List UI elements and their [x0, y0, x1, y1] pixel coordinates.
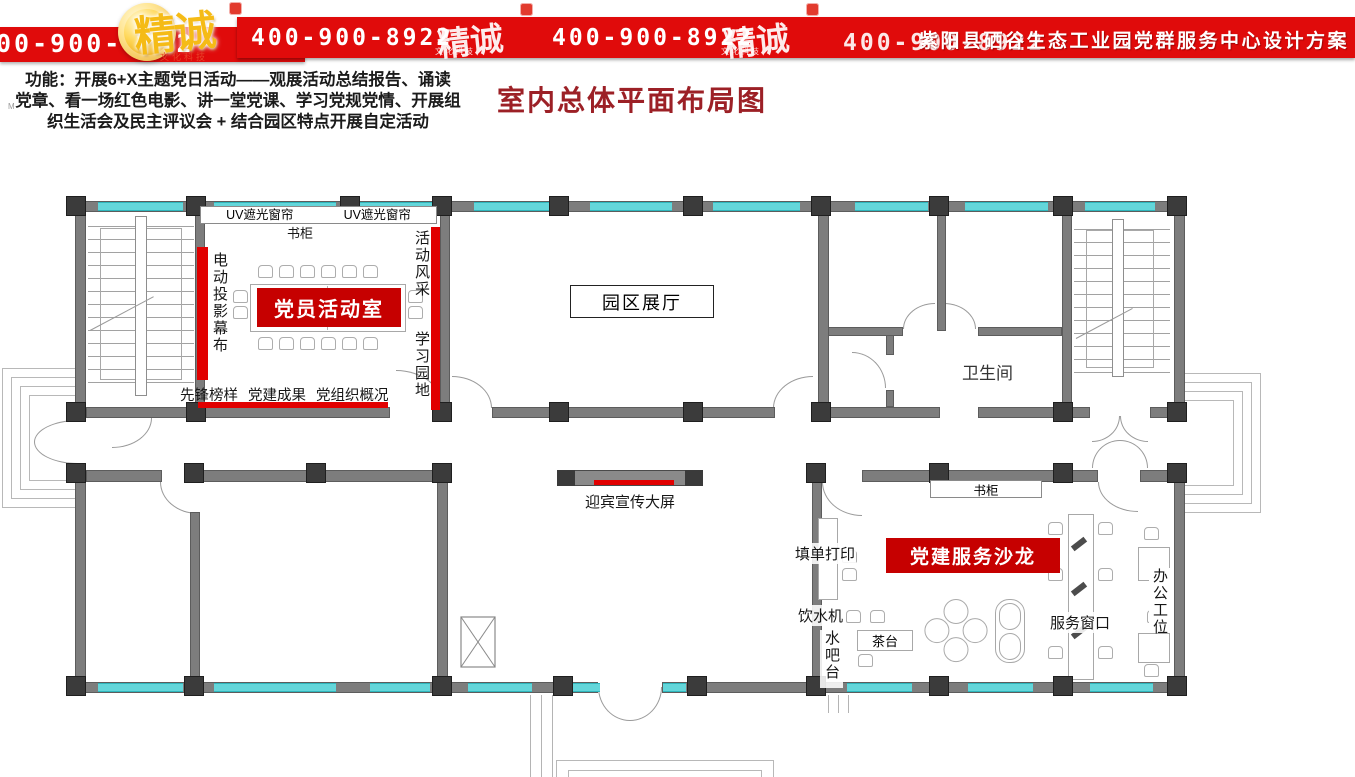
page-title: 室内总体平面布局图	[497, 79, 807, 119]
porch-line	[568, 770, 762, 777]
column	[184, 463, 204, 483]
chair	[870, 610, 885, 623]
door-arc	[903, 303, 935, 329]
door-arc	[773, 376, 813, 408]
window	[965, 202, 1048, 211]
chair	[342, 337, 357, 350]
flower-seating	[918, 594, 994, 670]
chair	[846, 610, 861, 623]
window	[847, 683, 912, 692]
party-achievements-label: 党建成果	[248, 384, 306, 405]
window	[1085, 202, 1155, 211]
wall	[75, 480, 86, 693]
pioneer-models-label: 先锋榜样	[180, 384, 238, 405]
chair	[342, 265, 357, 278]
red-display-band	[431, 227, 440, 410]
gold-emblem-logo: 精诚 文化科技	[100, 0, 260, 70]
column	[811, 196, 831, 216]
uv-curtain-label: UV遮光窗帘	[319, 207, 437, 223]
chair	[1144, 527, 1159, 540]
chair	[258, 337, 273, 350]
brand-calligraphy: 精诚	[721, 12, 792, 67]
uv-curtain-strip: UV遮光窗帘 UV遮光窗帘	[200, 206, 437, 224]
window	[572, 683, 600, 692]
brand-chop: 精诚 文化科技	[433, 17, 525, 58]
chair	[258, 265, 273, 278]
function-line: 织生活会及民主评议会 + 结合园区特点开展自定活动	[12, 112, 464, 133]
chair	[408, 306, 423, 319]
column	[1167, 676, 1187, 696]
wall	[75, 201, 86, 410]
window	[713, 202, 800, 211]
window	[214, 683, 336, 692]
door-arc	[822, 482, 862, 516]
column	[1053, 196, 1073, 216]
column	[929, 196, 949, 216]
chair	[233, 290, 248, 303]
column	[806, 463, 826, 483]
function-line: 功能：开展6+X主题党日活动——观展活动总结报告、诵读	[12, 70, 464, 91]
function-description: 功能：开展6+X主题党日活动——观展活动总结报告、诵读 党章、看一场红色电影、讲…	[12, 70, 464, 133]
learning-corner-label: 学习园地	[411, 331, 432, 407]
column	[687, 676, 707, 696]
window	[855, 202, 928, 211]
column	[553, 676, 573, 696]
porch-line	[1185, 400, 1234, 486]
window	[370, 683, 430, 692]
chair	[1144, 664, 1159, 677]
chair	[1048, 646, 1063, 659]
wall	[86, 470, 162, 482]
door-arc	[1120, 416, 1148, 442]
column	[1053, 402, 1073, 422]
wall	[978, 327, 1062, 336]
room-label-exhibition-hall: 园区展厅	[570, 285, 714, 318]
line	[541, 695, 542, 777]
door-arc	[1092, 416, 1120, 442]
line	[552, 695, 553, 777]
wall	[828, 327, 903, 336]
line	[530, 695, 531, 777]
column	[1053, 463, 1073, 483]
window	[468, 683, 532, 692]
chair	[1098, 568, 1113, 581]
chair	[300, 337, 315, 350]
service-window-label: 服务窗口	[1049, 612, 1111, 633]
water-dispenser-label: 饮水机	[797, 605, 844, 626]
projector-screen-label: 电动投影幕布	[209, 252, 230, 386]
door-arc	[452, 376, 492, 408]
column	[184, 676, 204, 696]
wall	[190, 512, 200, 682]
red-seal-icon	[520, 3, 533, 16]
column	[306, 463, 326, 483]
door-arc	[630, 687, 662, 721]
wall	[86, 407, 390, 418]
chair	[300, 265, 315, 278]
brand-subtext: 文化科技	[160, 50, 208, 63]
door-arc	[1120, 440, 1148, 468]
wall	[978, 407, 1062, 418]
chair	[233, 306, 248, 319]
column	[549, 402, 569, 422]
line	[838, 695, 839, 713]
phone-band-main: 400-900-8922 精诚 文化科技 400-900-8922 精诚 文化科…	[237, 17, 1355, 58]
column	[1053, 676, 1073, 696]
red-display-band	[197, 247, 208, 380]
brand-subtext: 文化科技	[721, 46, 761, 57]
welcome-screen-label: 迎宾宣传大屏	[560, 491, 700, 512]
window	[98, 683, 183, 692]
screen-end-cap	[685, 470, 703, 486]
wall	[1174, 201, 1185, 407]
chair	[321, 337, 336, 350]
column	[1167, 463, 1187, 483]
wall	[1062, 201, 1072, 407]
furniture	[999, 633, 1021, 660]
shaft-x-box	[460, 616, 496, 673]
line	[848, 695, 849, 713]
room-label-restroom: 卫生间	[962, 359, 1013, 384]
window	[663, 683, 686, 692]
column	[683, 402, 703, 422]
wall	[440, 201, 450, 407]
column	[432, 463, 452, 483]
brand-calligraphy: 精诚	[435, 12, 506, 67]
chair	[279, 337, 294, 350]
wall	[437, 482, 448, 682]
column	[1167, 402, 1187, 422]
furniture	[1138, 633, 1170, 663]
wall	[1174, 480, 1185, 693]
chair	[1098, 522, 1113, 535]
chair	[279, 265, 294, 278]
red-seal-icon	[229, 2, 242, 15]
furniture	[999, 603, 1021, 630]
wall	[937, 201, 946, 331]
chair	[1098, 646, 1113, 659]
stair-rail	[1112, 219, 1124, 377]
welcome-screen-strip	[594, 480, 674, 485]
wall	[886, 390, 894, 407]
column	[66, 463, 86, 483]
wall	[818, 201, 829, 407]
party-org-overview-label: 党组织概况	[316, 384, 389, 405]
banner-title: 紫阳县硒谷生态工业园党群服务中心设计方案	[919, 26, 1349, 53]
chair	[1048, 522, 1063, 535]
wall-display-labels: 先锋榜样 党建成果 党组织概况	[180, 384, 389, 405]
column	[66, 402, 86, 422]
bookcase-label: 书柜	[287, 223, 313, 242]
column	[549, 196, 569, 216]
door-arc	[160, 482, 198, 514]
phone-number: 400-900-8922	[251, 25, 453, 51]
chair	[363, 265, 378, 278]
column	[929, 676, 949, 696]
column	[1167, 196, 1187, 216]
window	[474, 202, 549, 211]
chair	[321, 265, 336, 278]
room-label-activity-room: 党员活动室	[257, 288, 401, 327]
door-arc	[852, 352, 886, 388]
form-printing-label: 填单打印	[794, 543, 856, 564]
brand-subtext: 文化科技	[435, 46, 475, 57]
bookcase-salon-label: 书柜	[930, 480, 1042, 498]
column	[432, 676, 452, 696]
screen-end-cap	[557, 470, 575, 486]
window	[968, 683, 1033, 692]
function-line: 党章、看一场红色电影、讲一堂党课、学习党规党情、开展组	[12, 91, 464, 112]
red-seal-icon	[806, 3, 819, 16]
window	[1090, 683, 1153, 692]
door-arc	[598, 687, 630, 721]
line	[828, 695, 829, 713]
column	[683, 196, 703, 216]
door-arc	[1098, 482, 1138, 512]
office-workstation-label: 办公工位	[1149, 568, 1170, 632]
uv-curtain-label: UV遮光窗帘	[201, 207, 319, 223]
tea-table-label: 茶台	[857, 630, 913, 651]
column	[66, 676, 86, 696]
chair	[842, 568, 857, 581]
chair	[363, 337, 378, 350]
brand-chop: 精诚 文化科技	[719, 17, 811, 58]
door-arc	[944, 303, 976, 329]
water-bar-label: 水吧台	[820, 630, 843, 688]
window	[590, 202, 672, 211]
window	[98, 202, 183, 211]
chair	[858, 654, 873, 667]
wall	[828, 407, 940, 418]
column	[66, 196, 86, 216]
column	[811, 402, 831, 422]
wall	[492, 407, 775, 418]
door-arc	[1092, 440, 1120, 468]
activity-showcase-label: 活动风采	[411, 230, 432, 306]
room-label-salon: 党建服务沙龙	[886, 538, 1060, 573]
door-arc	[112, 418, 152, 448]
